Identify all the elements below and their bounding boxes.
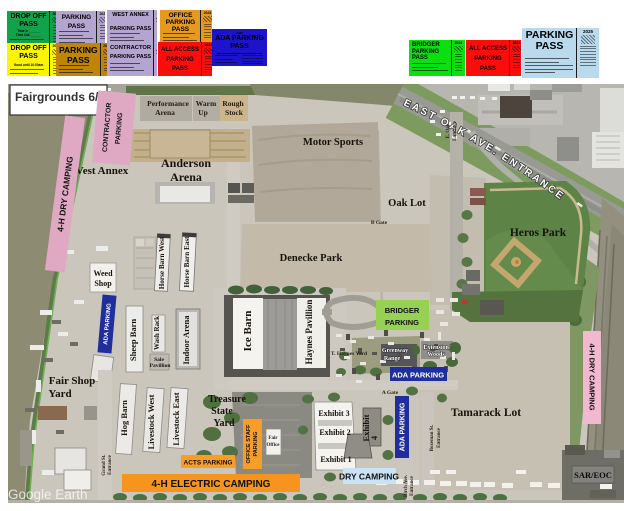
svg-text:Horse Barn East: Horse Barn East [183, 236, 191, 288]
svg-text:Shop: Shop [94, 279, 112, 288]
svg-text:SAR/EOC: SAR/EOC [574, 470, 612, 480]
svg-text:Wash Rack: Wash Rack [153, 316, 161, 350]
svg-text:Entrance: Entrance [108, 454, 113, 475]
svg-text:Entrance: Entrance [410, 475, 415, 496]
svg-text:PARKING: PARKING [385, 318, 419, 327]
svg-text:Yard: Yard [48, 388, 71, 400]
svg-text:OFFICE STAFF: OFFICE STAFF [246, 424, 252, 464]
svg-text:Ice Barn: Ice Barn [242, 311, 254, 352]
svg-text:Indoor Arena: Indoor Arena [181, 315, 191, 365]
svg-text:T. Haynes Yard: T. Haynes Yard [331, 351, 367, 357]
svg-text:Fair: Fair [268, 436, 278, 441]
svg-text:Treasure: Treasure [208, 394, 246, 405]
svg-text:Exhibit 3: Exhibit 3 [318, 409, 349, 418]
svg-text:4-H DRY CAMPING: 4-H DRY CAMPING [588, 343, 597, 410]
svg-text:Woods: Woods [427, 352, 445, 358]
svg-text:E. Oak: E. Oak [446, 123, 451, 138]
svg-text:Fair Shop: Fair Shop [49, 375, 96, 387]
svg-text:Horse Barn West: Horse Barn West [158, 236, 166, 289]
svg-text:Range: Range [384, 356, 401, 362]
svg-text:Bozeman St.: Bozeman St. [430, 424, 435, 451]
svg-text:Exhibit 1: Exhibit 1 [320, 455, 351, 464]
svg-text:Extension/: Extension/ [423, 345, 450, 351]
svg-text:Entrance: Entrance [437, 427, 442, 448]
svg-text:Tamarack Lot: Tamarack Lot [451, 407, 521, 419]
svg-text:Arena: Arena [170, 170, 202, 184]
svg-text:Exhibit 2: Exhibit 2 [319, 428, 350, 437]
svg-text:ACTS PARKING: ACTS PARKING [184, 460, 233, 467]
svg-text:Sheep Barn: Sheep Barn [128, 319, 138, 362]
svg-text:Stock: Stock [225, 108, 244, 117]
svg-text:State: State [211, 406, 233, 417]
svg-text:Weed: Weed [93, 269, 113, 278]
svg-text:Google Earth: Google Earth [8, 487, 88, 502]
svg-text:Grand St.: Grand St. [102, 454, 107, 476]
svg-text:Performance: Performance [147, 99, 189, 108]
svg-text:Office: Office [266, 443, 280, 448]
svg-text:B Gate: B Gate [371, 220, 388, 226]
svg-text:DRY CAMPING: DRY CAMPING [339, 472, 399, 482]
svg-text:A Gate: A Gate [382, 390, 399, 396]
svg-text:Livestock West: Livestock West [146, 394, 156, 449]
svg-text:Livestock East: Livestock East [171, 392, 181, 445]
svg-text:BRIDGER: BRIDGER [385, 306, 420, 315]
svg-text:PARKING: PARKING [253, 432, 259, 457]
svg-text:Up: Up [198, 108, 208, 117]
svg-text:Anderson: Anderson [161, 156, 211, 170]
svg-text:Warm: Warm [196, 99, 217, 108]
svg-text:Arena: Arena [155, 108, 175, 117]
svg-text:Greenway: Greenway [382, 348, 408, 354]
svg-text:Birch Ave.: Birch Ave. [404, 474, 409, 497]
svg-text:Entrance: Entrance [453, 120, 458, 141]
svg-text:Vest Annex: Vest Annex [76, 165, 129, 177]
svg-text:Motor Sports: Motor Sports [303, 137, 363, 148]
svg-text:ADA PARKING: ADA PARKING [400, 402, 407, 451]
svg-text:Hog Barn: Hog Barn [119, 400, 129, 436]
svg-text:Rough: Rough [222, 99, 244, 108]
svg-text:Oak Lot: Oak Lot [388, 198, 426, 209]
svg-text:4-H ELECTRIC CAMPING: 4-H ELECTRIC CAMPING [152, 479, 271, 490]
svg-text:Heros Park: Heros Park [510, 227, 567, 239]
svg-text:ADA PARKING: ADA PARKING [392, 371, 444, 380]
svg-text:Pavillion: Pavillion [150, 363, 171, 369]
svg-text:Denecke Park: Denecke Park [280, 253, 343, 264]
svg-text:Yard: Yard [213, 418, 235, 429]
svg-text:Haynes Pavillion: Haynes Pavillion [304, 300, 314, 365]
